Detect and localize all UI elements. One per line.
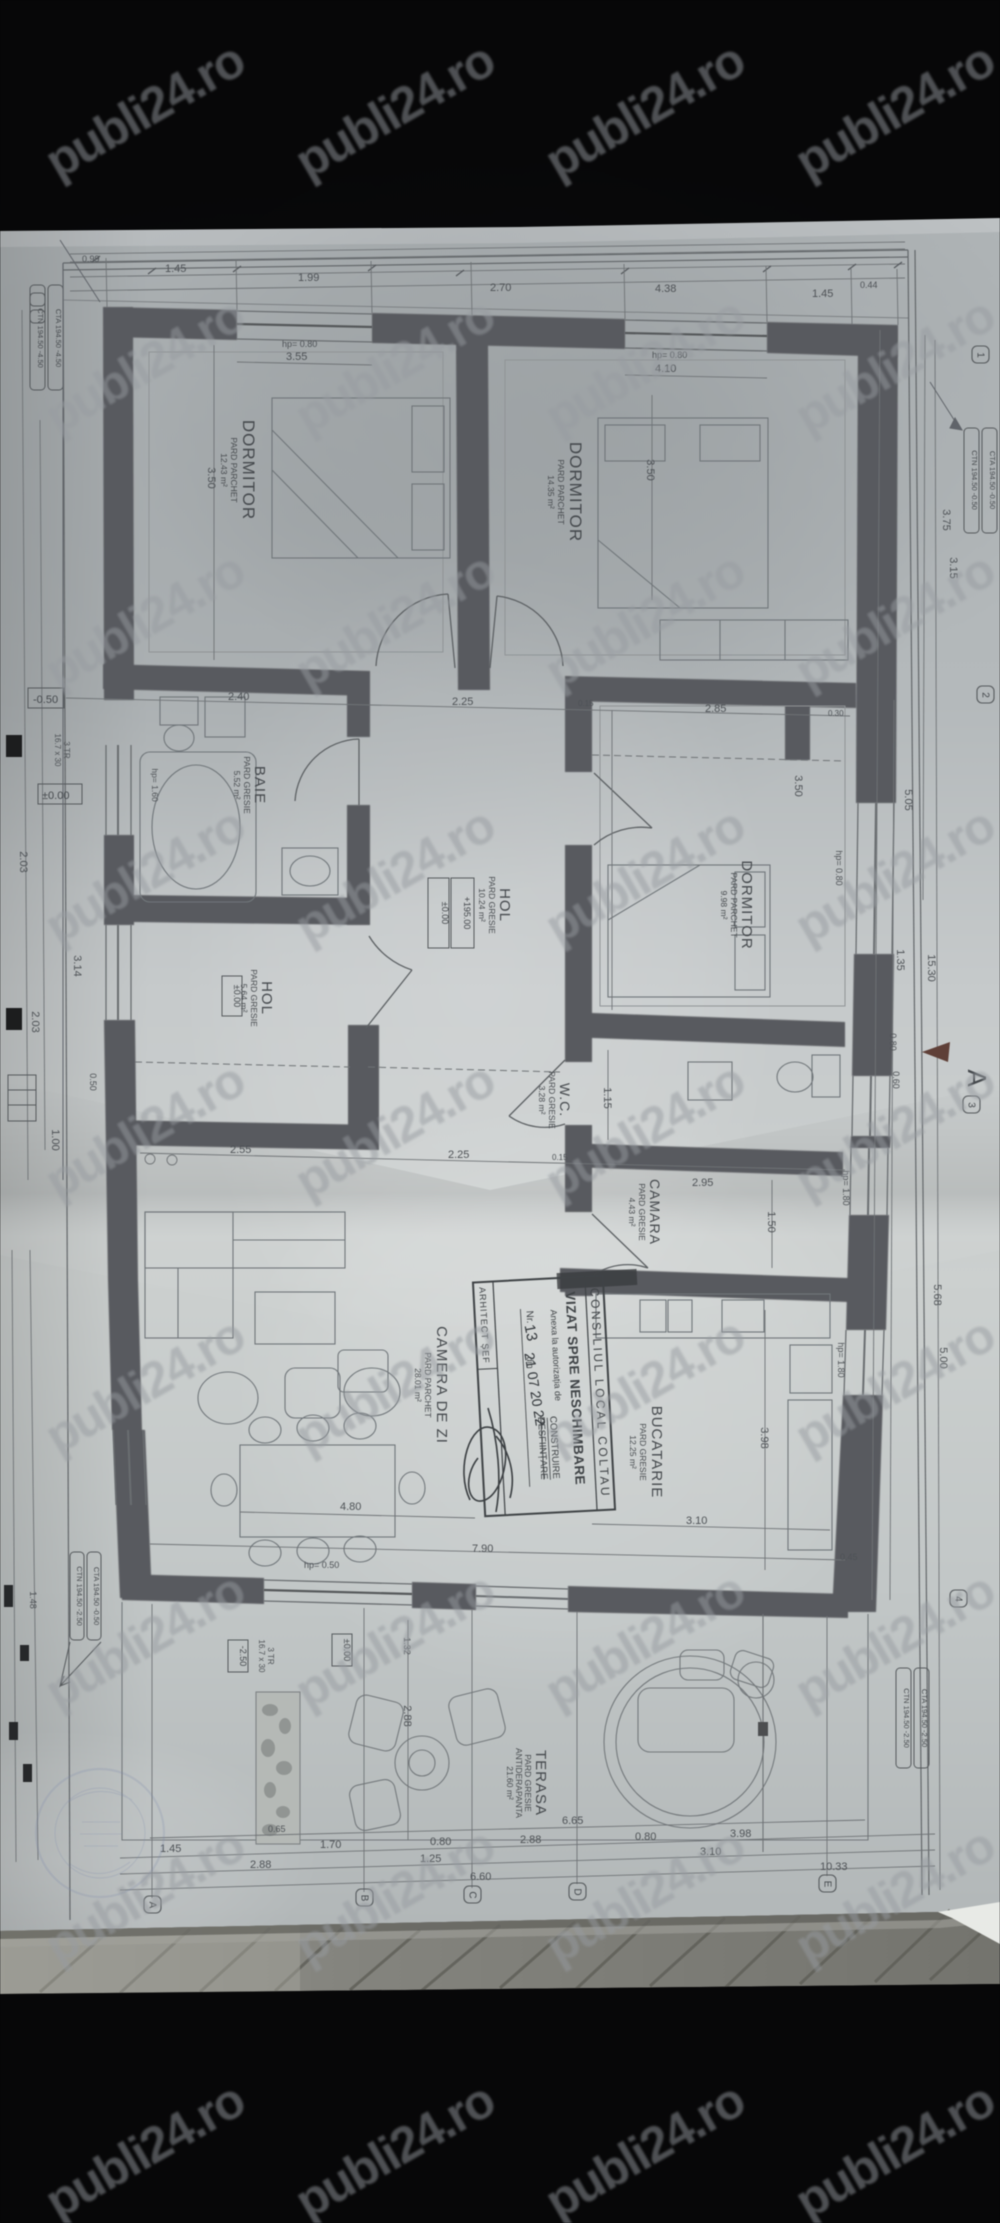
svg-text:0.45: 0.45 (840, 1552, 858, 1562)
svg-text:1.15: 1.15 (601, 1087, 613, 1108)
svg-text:PARD GRESIE: PARD GRESIE (638, 1423, 648, 1481)
svg-text:3.50: 3.50 (644, 459, 656, 480)
svg-text:15.30: 15.30 (925, 954, 937, 982)
svg-text:3.14: 3.14 (71, 955, 83, 976)
svg-text:CTN 194.50 -0.50: CTN 194.50 -0.50 (970, 450, 979, 510)
svg-text:7.90: 7.90 (472, 1543, 493, 1555)
svg-text:hp= 0.80: hp= 0.80 (282, 339, 317, 349)
svg-text:0.30: 0.30 (828, 709, 844, 718)
svg-text:hp= 1.60: hp= 1.60 (150, 768, 160, 802)
svg-text:1.35: 1.35 (894, 949, 906, 970)
svg-text:4.80: 4.80 (340, 1501, 361, 1513)
svg-text:PARD PARCHET: PARD PARCHET (729, 872, 739, 937)
svg-text:3.50: 3.50 (792, 775, 804, 796)
svg-text:hp= 1.80: hp= 1.80 (836, 1342, 846, 1377)
svg-text:-2.50: -2.50 (238, 1646, 248, 1667)
svg-text:0.99: 0.99 (82, 254, 100, 264)
svg-text:TERASA: TERASA (532, 1750, 549, 1816)
svg-text:1.45: 1.45 (165, 263, 186, 275)
svg-text:2.25: 2.25 (452, 696, 473, 708)
svg-text:0.80: 0.80 (635, 1831, 656, 1843)
svg-text:CTA 194.50 -2.50: CTA 194.50 -2.50 (920, 1689, 929, 1747)
svg-text:3 TR: 3 TR (266, 1647, 275, 1664)
svg-text:16.7 x 30: 16.7 x 30 (257, 1640, 266, 1673)
svg-text:4.38: 4.38 (655, 283, 676, 295)
svg-text:CTA 194.50 -0.50: CTA 194.50 -0.50 (988, 451, 997, 509)
svg-text:3.28 m²: 3.28 m² (537, 1086, 547, 1115)
svg-text:PARD PARCHET: PARD PARCHET (229, 437, 239, 502)
svg-text:10.33: 10.33 (820, 1861, 848, 1873)
svg-text:±0.00: ±0.00 (440, 902, 450, 924)
svg-text:E: E (822, 1881, 833, 1888)
svg-text:3.55: 3.55 (286, 351, 307, 363)
svg-text:2: 2 (980, 692, 991, 698)
svg-text:DORMITOR: DORMITOR (239, 420, 258, 520)
svg-text:1: 1 (975, 352, 986, 358)
svg-text:hp= 0.50: hp= 0.50 (304, 1560, 339, 1570)
svg-text:DORMITOR: DORMITOR (738, 860, 755, 949)
svg-text:2.55: 2.55 (230, 1144, 251, 1156)
svg-text:CTA 194.50 -4.50: CTA 194.50 -4.50 (54, 309, 63, 367)
svg-text:CTN 194.50 -2.50: CTN 194.50 -2.50 (902, 1688, 911, 1748)
svg-text:0.80: 0.80 (888, 1033, 898, 1051)
svg-text:HOL: HOL (258, 981, 275, 1015)
svg-text:1.45: 1.45 (812, 288, 833, 300)
svg-text:BAIE: BAIE (251, 766, 268, 804)
svg-text:PARD GRESIE: PARD GRESIE (487, 876, 497, 934)
svg-text:2.25: 2.25 (448, 1149, 469, 1161)
svg-text:±0.00: ±0.00 (232, 985, 242, 1007)
svg-text:0.60: 0.60 (891, 1071, 901, 1089)
svg-text:BUCATARIE: BUCATARIE (648, 1406, 665, 1499)
svg-text:2.03: 2.03 (17, 851, 29, 872)
svg-text:14.35 m²: 14.35 m² (546, 475, 556, 509)
svg-text:5.05: 5.05 (902, 789, 914, 810)
svg-text:2.88: 2.88 (250, 1859, 271, 1871)
svg-text:3.50: 3.50 (205, 467, 217, 488)
svg-text:12.43 m²: 12.43 m² (219, 453, 229, 487)
svg-text:0.44: 0.44 (860, 280, 878, 290)
svg-text:-0.50: -0.50 (33, 694, 58, 706)
svg-text:PARD PARCHET: PARD PARCHET (556, 459, 566, 524)
svg-text:Nr.: Nr. (524, 1310, 536, 1323)
svg-text:DORMITOR: DORMITOR (566, 442, 585, 542)
svg-text:21.60 m²: 21.60 m² (505, 1766, 515, 1800)
svg-text:PARD GRESIE: PARD GRESIE (547, 1071, 557, 1129)
svg-text:2.03: 2.03 (29, 1011, 41, 1032)
svg-text:PARD GRESIE: PARD GRESIE (249, 969, 259, 1027)
svg-text:0.50: 0.50 (88, 1073, 98, 1091)
svg-text:9.98 m²: 9.98 m² (719, 891, 729, 920)
svg-text:16.7 x 30: 16.7 x 30 (53, 734, 62, 767)
svg-text:2.88: 2.88 (401, 1705, 413, 1726)
svg-text:5.52 m²: 5.52 m² (232, 771, 242, 800)
svg-text:1.70: 1.70 (320, 1839, 341, 1851)
svg-text:2.88: 2.88 (520, 1834, 541, 1846)
svg-text:3.10: 3.10 (686, 1515, 707, 1527)
svg-text:2.40: 2.40 (228, 691, 249, 703)
svg-text:C: C (467, 1891, 478, 1898)
svg-text:+195.00: +195.00 (462, 897, 472, 930)
svg-text:6.65: 6.65 (562, 1815, 583, 1827)
svg-text:13: 13 (521, 1323, 541, 1343)
svg-text:2.70: 2.70 (490, 282, 511, 294)
svg-text:12.25 m²: 12.25 m² (628, 1435, 638, 1469)
svg-text:3.98: 3.98 (758, 1427, 770, 1448)
svg-text:CTN 194.50 -2.50: CTN 194.50 -2.50 (75, 1566, 84, 1626)
svg-text:5.68: 5.68 (931, 1284, 943, 1305)
svg-text:10.24 m²: 10.24 m² (477, 888, 487, 922)
svg-text:1.50: 1.50 (765, 1211, 777, 1232)
svg-text:D: D (572, 1888, 583, 1895)
svg-text:1.48: 1.48 (28, 1591, 38, 1609)
svg-text:HOL: HOL (496, 888, 513, 922)
svg-text:CAMARA: CAMARA (647, 1179, 663, 1245)
svg-text:3.75: 3.75 (940, 509, 952, 530)
svg-text:1.99: 1.99 (298, 272, 319, 284)
svg-text:W.C.: W.C. (557, 1083, 573, 1117)
svg-text:PARD GRESIE: PARD GRESIE (637, 1183, 647, 1241)
svg-text:CTN 194.50 -4.50: CTN 194.50 -4.50 (36, 308, 45, 368)
svg-text:2.85: 2.85 (705, 703, 726, 715)
svg-text:0.65: 0.65 (268, 1824, 286, 1834)
svg-text:4.43 m²: 4.43 m² (627, 1198, 637, 1227)
svg-text:0.15: 0.15 (578, 699, 594, 708)
svg-text:2.95: 2.95 (692, 1177, 713, 1189)
svg-text:±0.00: ±0.00 (42, 790, 69, 802)
svg-text:CTA 194.50 -0.50: CTA 194.50 -0.50 (92, 1567, 101, 1625)
svg-text:PARD GRESIE: PARD GRESIE (242, 756, 252, 814)
